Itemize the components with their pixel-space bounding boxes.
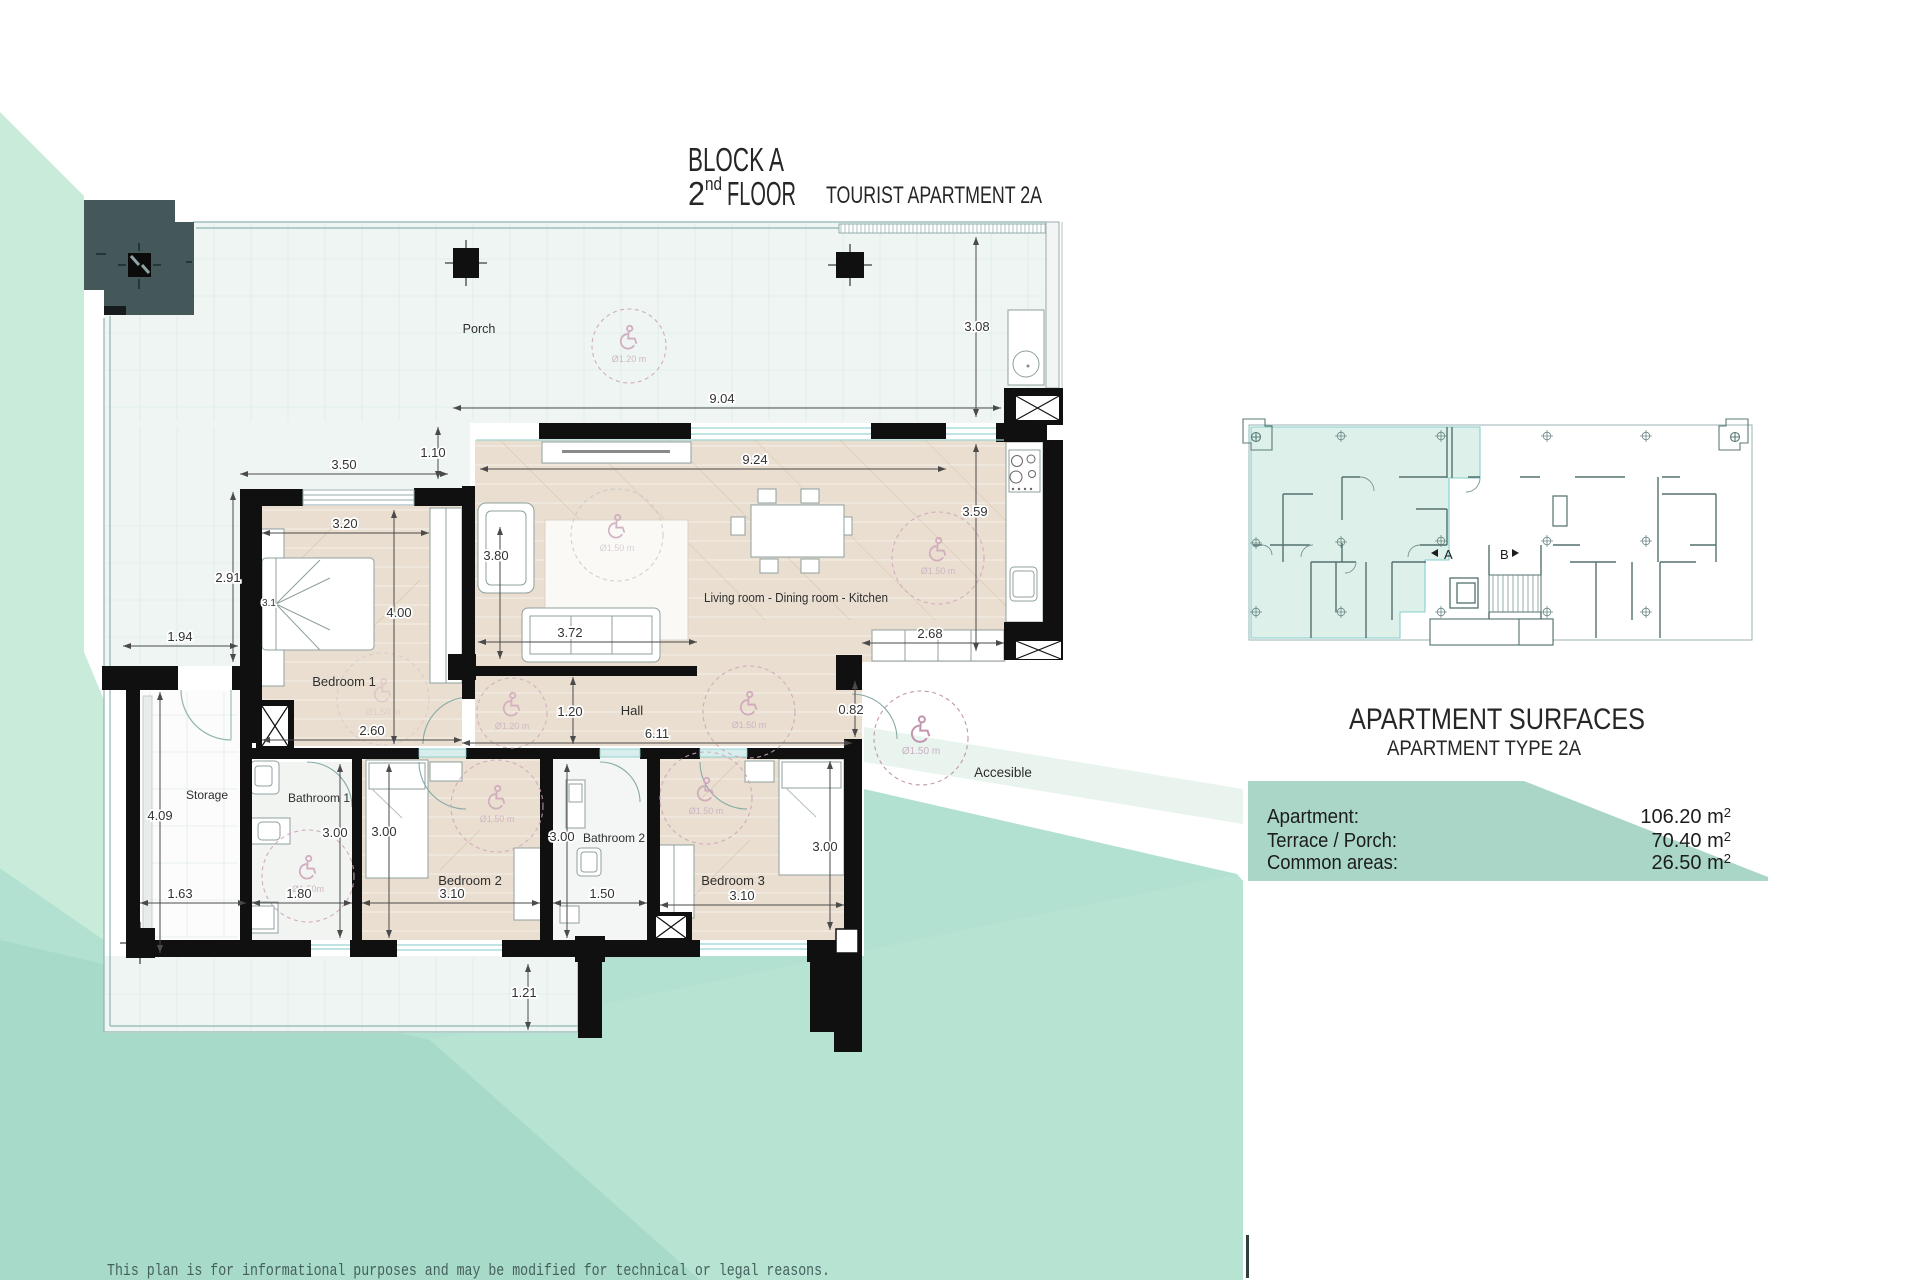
svg-text:Ø1.50 m: Ø1.50 m: [732, 720, 767, 730]
svg-text:3.50: 3.50: [331, 457, 356, 472]
svg-text:2.91: 2.91: [215, 570, 240, 585]
svg-text:3.1: 3.1: [262, 598, 276, 609]
svg-text:1.21: 1.21: [511, 985, 536, 1000]
svg-text:2: 2: [688, 175, 705, 212]
svg-text:9.04: 9.04: [709, 391, 734, 406]
svg-text:A: A: [1444, 547, 1453, 562]
svg-text:BLOCK A: BLOCK A: [688, 141, 784, 178]
svg-text:APARTMENT SURFACES: APARTMENT SURFACES: [1349, 703, 1645, 736]
svg-text:0.82: 0.82: [838, 702, 863, 717]
svg-text:Living room - Dining room - Ki: Living room - Dining room - Kitchen: [704, 590, 888, 605]
svg-text:1.10: 1.10: [420, 445, 445, 460]
svg-text:Hall: Hall: [621, 703, 644, 718]
svg-text:nd: nd: [705, 174, 722, 194]
svg-text:This plan is for informational: This plan is for informational purposes …: [107, 1262, 830, 1280]
svg-text:Bathroom 1: Bathroom 1: [288, 791, 350, 805]
svg-text:4.09: 4.09: [147, 808, 172, 823]
svg-text:Ø1.50 m: Ø1.50 m: [366, 707, 401, 717]
svg-text:Bedroom 2: Bedroom 2: [438, 873, 502, 888]
svg-text:9.24: 9.24: [742, 452, 767, 467]
svg-text:Ø1.50 m: Ø1.50 m: [600, 543, 635, 553]
svg-text:APARTMENT TYPE 2A: APARTMENT TYPE 2A: [1387, 737, 1581, 760]
svg-text:Ø1.20 m: Ø1.20 m: [495, 721, 530, 731]
svg-text:Accesible: Accesible: [974, 765, 1032, 780]
svg-text:Apartment:: Apartment:: [1267, 806, 1359, 828]
svg-text:FLOOR: FLOOR: [727, 175, 796, 212]
svg-text:1.94: 1.94: [167, 629, 192, 644]
svg-text:Bathroom 2: Bathroom 2: [583, 831, 645, 845]
svg-text:Bedroom 1: Bedroom 1: [312, 674, 376, 689]
svg-text:106.20 m2: 106.20 m2: [1640, 805, 1731, 828]
svg-text:Terrace / Porch:: Terrace / Porch:: [1267, 830, 1397, 852]
svg-text:3.20: 3.20: [332, 516, 357, 531]
svg-text:2.68: 2.68: [917, 626, 942, 641]
svg-text:Bedroom 3: Bedroom 3: [701, 873, 765, 888]
svg-text:26.50 m2: 26.50 m2: [1652, 851, 1732, 874]
svg-text:3.00: 3.00: [371, 824, 396, 839]
svg-text:3.08: 3.08: [964, 319, 989, 334]
svg-text:Ø1.50 m: Ø1.50 m: [902, 746, 940, 757]
svg-text:1.80: 1.80: [286, 886, 311, 901]
svg-text:Ø1.50 m: Ø1.50 m: [689, 806, 724, 816]
svg-text:1.50: 1.50: [589, 886, 614, 901]
svg-text:3.00: 3.00: [322, 825, 347, 840]
svg-text:1.20: 1.20: [557, 704, 582, 719]
svg-text:70.40 m2: 70.40 m2: [1652, 829, 1732, 852]
svg-text:Ø1.50 m: Ø1.50 m: [480, 814, 515, 824]
svg-text:Storage: Storage: [186, 788, 228, 802]
svg-text:Ø1.20 m: Ø1.20 m: [612, 354, 647, 364]
svg-text:3.72: 3.72: [557, 625, 582, 640]
svg-text:6.11: 6.11: [645, 726, 669, 741]
svg-text:3.10: 3.10: [439, 886, 464, 901]
svg-text:4.00: 4.00: [386, 605, 411, 620]
svg-text:2.60: 2.60: [359, 723, 384, 738]
svg-text:3.59: 3.59: [962, 504, 987, 519]
svg-text:3.00: 3.00: [812, 839, 837, 854]
svg-text:3.10: 3.10: [729, 888, 754, 903]
svg-text:Common areas:: Common areas:: [1267, 852, 1398, 874]
svg-text:Ø1.50 m: Ø1.50 m: [921, 566, 956, 576]
svg-text:TOURIST APARTMENT 2A: TOURIST APARTMENT 2A: [826, 182, 1042, 209]
svg-text:1.63: 1.63: [167, 886, 192, 901]
svg-text:3.00: 3.00: [549, 829, 574, 844]
svg-text:3.80: 3.80: [483, 548, 508, 563]
svg-text:Porch: Porch: [463, 322, 496, 336]
svg-text:B: B: [1500, 547, 1509, 562]
